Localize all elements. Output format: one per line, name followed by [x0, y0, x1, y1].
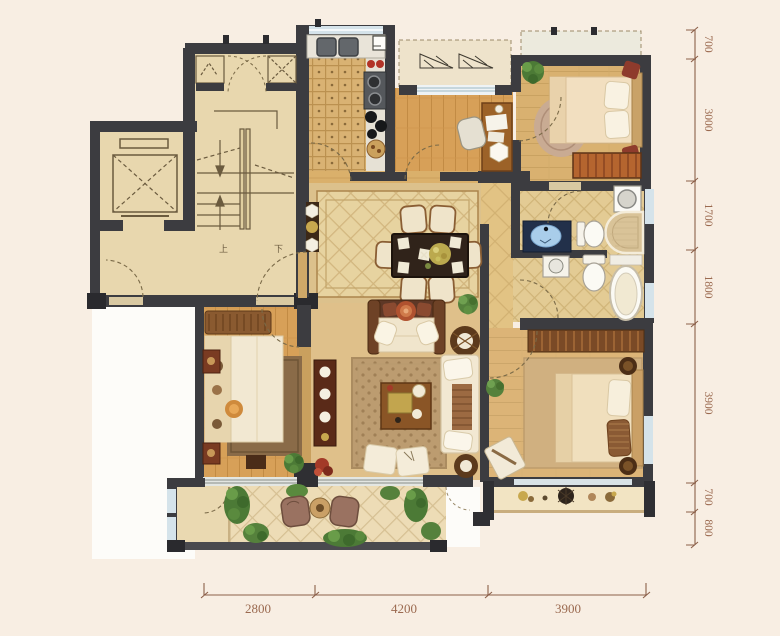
svg-text:800: 800 [702, 519, 714, 537]
svg-text:3900: 3900 [555, 601, 581, 616]
svg-text:下: 下 [274, 244, 283, 254]
svg-text:4200: 4200 [391, 601, 417, 616]
svg-text:2800: 2800 [245, 601, 271, 616]
svg-text:700: 700 [702, 35, 714, 53]
svg-text:3000: 3000 [702, 109, 714, 132]
svg-text:3900: 3900 [702, 392, 714, 415]
svg-text:1800: 1800 [702, 276, 714, 299]
svg-text:1700: 1700 [702, 204, 714, 227]
svg-text:700: 700 [702, 488, 714, 506]
svg-text:上: 上 [219, 244, 228, 254]
